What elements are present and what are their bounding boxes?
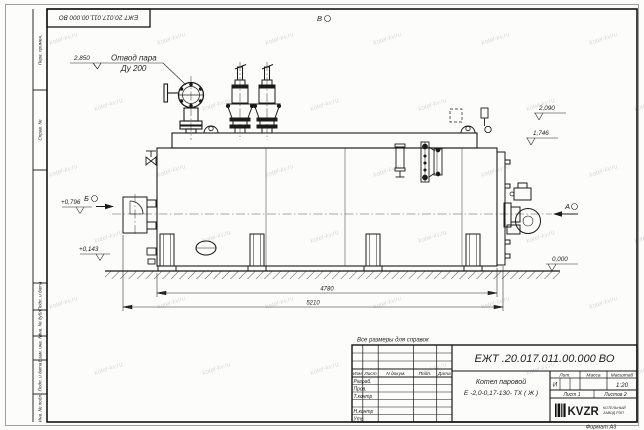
border-label-vzam-inv: Взам. инв. № xyxy=(38,334,43,362)
watermark-text: kotel-kv.ru xyxy=(588,163,619,179)
steam-outlet-label-1: Отвод пара xyxy=(111,54,157,63)
watermark-text: kotel-kv.ru xyxy=(588,295,619,311)
border-label-podp-data-2: Подп. и дата xyxy=(38,362,43,391)
drawing-sheet: kotel-kv.rukotel-kv.rukotel-kv.rukotel-k… xyxy=(0,0,644,430)
steam-outlet-label-2: Ду 200 xyxy=(120,64,147,73)
border-label-inv-dubl: Инв. № дубл. xyxy=(38,309,43,337)
format-label: Формат А3 xyxy=(586,425,617,430)
steam-outlet-callout: 2,850 Отвод пара Ду 200 xyxy=(70,54,186,86)
watermark-text: kotel-kv.ru xyxy=(372,31,403,47)
title-doc-number: ЕЖТ .20.017.011.00.000 ВО xyxy=(475,353,615,365)
mass-label: Масса xyxy=(586,372,601,378)
watermark-text: kotel-kv.ru xyxy=(201,229,232,245)
watermark-text: kotel-kv.ru xyxy=(156,163,187,179)
water-gauge-simple xyxy=(395,144,405,177)
watermark-text: kotel-kv.ru xyxy=(264,31,295,47)
view-b-label: Б xyxy=(84,194,89,203)
elev-2090-label: 2,090 xyxy=(538,105,555,112)
view-a-label: А xyxy=(564,202,570,211)
watermark-text: kotel-kv.ru xyxy=(309,229,340,245)
watermark-text: kotel-kv.ru xyxy=(309,97,340,113)
company-name-line1: КОТЕЛЬНЫЙ xyxy=(603,406,626,410)
burner-assembly xyxy=(504,183,541,234)
watermark-text: kotel-kv.ru xyxy=(480,163,511,179)
watermark-text: kotel-kv.ru xyxy=(93,229,124,245)
watermark-text: kotel-kv.ru xyxy=(588,31,619,47)
watermark-text: kotel-kv.ru xyxy=(201,361,232,377)
border-label-podp-data-1: Подп. и дата xyxy=(38,281,43,310)
row-prov: Пров. xyxy=(354,386,367,392)
reference-note: Все размеры для справок xyxy=(357,338,430,344)
top-doc-stamp-text: ЕЖТ 20.017.011.00.000 ВО xyxy=(59,14,139,21)
view-a-marker: А xyxy=(553,202,578,217)
watermark-text: kotel-kv.ru xyxy=(48,295,79,311)
watermark-text: kotel-kv.ru xyxy=(480,31,511,47)
watermark-text: kotel-kv.ru xyxy=(93,361,124,377)
watermark-text: kotel-kv.ru xyxy=(264,163,295,179)
company-name-line2: ЗАВОД РЭП xyxy=(603,411,624,415)
boiler-body xyxy=(157,133,497,266)
product-name: Котел паровой xyxy=(476,378,526,386)
row-nkontr: Н.контр xyxy=(354,409,374,415)
sheet-number: Лист 1 xyxy=(562,392,580,398)
dim-4780-label: 4780 xyxy=(320,287,334,293)
watermark-text: kotel-kv.ru xyxy=(309,361,340,377)
ground xyxy=(105,271,560,279)
col-data: Дата xyxy=(437,371,451,377)
company-logo: KVZR КОТЕЛЬНЫЙ ЗАВОД РЭП xyxy=(555,404,626,419)
elev-0796-label: +0,796 xyxy=(61,199,81,206)
product-type: Е -2,0-0,17-130- ТХ ( Ж ) xyxy=(464,390,538,397)
watermark-text: kotel-kv.ru xyxy=(417,97,448,113)
border-label-sprav-no: Справ. № xyxy=(38,120,43,141)
left-stamp-labels: Перв. примен. Справ. № Подп. и дата Инв.… xyxy=(38,35,43,423)
boiler-drawing-svg: kotel-kv.rukotel-kv.rukotel-kv.rukotel-k… xyxy=(0,0,644,430)
watermark-text: kotel-kv.ru xyxy=(417,229,448,245)
lit-value: И xyxy=(553,383,558,389)
watermark-text: kotel-kv.ru xyxy=(372,295,403,311)
watermark-text: kotel-kv.ru xyxy=(264,295,295,311)
watermark-text: kotel-kv.ru xyxy=(156,295,187,311)
sheets-total: Листов 2 xyxy=(603,392,627,398)
col-podp: Подп. xyxy=(419,371,432,377)
view-b-top-label: В xyxy=(317,14,322,23)
col-list: Лист xyxy=(363,371,376,377)
top-right-fittings xyxy=(450,108,491,133)
view-b-top-marker: В xyxy=(317,14,331,23)
scale-label: Масштаб xyxy=(611,372,634,378)
border-label-inv-podl: Инв. № подл. xyxy=(38,394,43,423)
elev-0000-label: 0,000 xyxy=(552,256,568,263)
watermark-text: kotel-kv.ru xyxy=(48,31,79,47)
scale-value: 1:20 xyxy=(616,382,629,389)
col-ndoc: N докум. xyxy=(386,371,405,377)
watermark-text: kotel-kv.ru xyxy=(156,31,187,47)
row-utv: Утв. xyxy=(354,416,365,422)
top-doc-stamp: ЕЖТ 20.017.011.00.000 ВО xyxy=(47,9,150,27)
elev-1746-label: 1,746 xyxy=(533,130,549,137)
watermark-text: kotel-kv.ru xyxy=(93,97,124,113)
watermark-text: kotel-kv.ru xyxy=(48,163,79,179)
row-tkontr: Т.контр xyxy=(354,394,373,400)
row-razrab: Разраб. xyxy=(354,379,372,385)
boiler-centerline xyxy=(112,62,552,236)
lit-label: Лит. xyxy=(558,372,570,378)
dim-5210-label: 5210 xyxy=(306,301,320,307)
border-label-perv-primen: Перв. примен. xyxy=(38,35,43,66)
elev-2850-label: 2,850 xyxy=(73,55,90,62)
elev-0143-label: +0,143 xyxy=(79,246,99,253)
watermark-text: kotel-kv.ru xyxy=(525,229,556,245)
logo-text: KVZR xyxy=(568,406,600,418)
col-izm: Изм xyxy=(353,371,363,377)
steam-outlet-valve xyxy=(164,83,204,134)
furnace-door xyxy=(123,197,156,233)
